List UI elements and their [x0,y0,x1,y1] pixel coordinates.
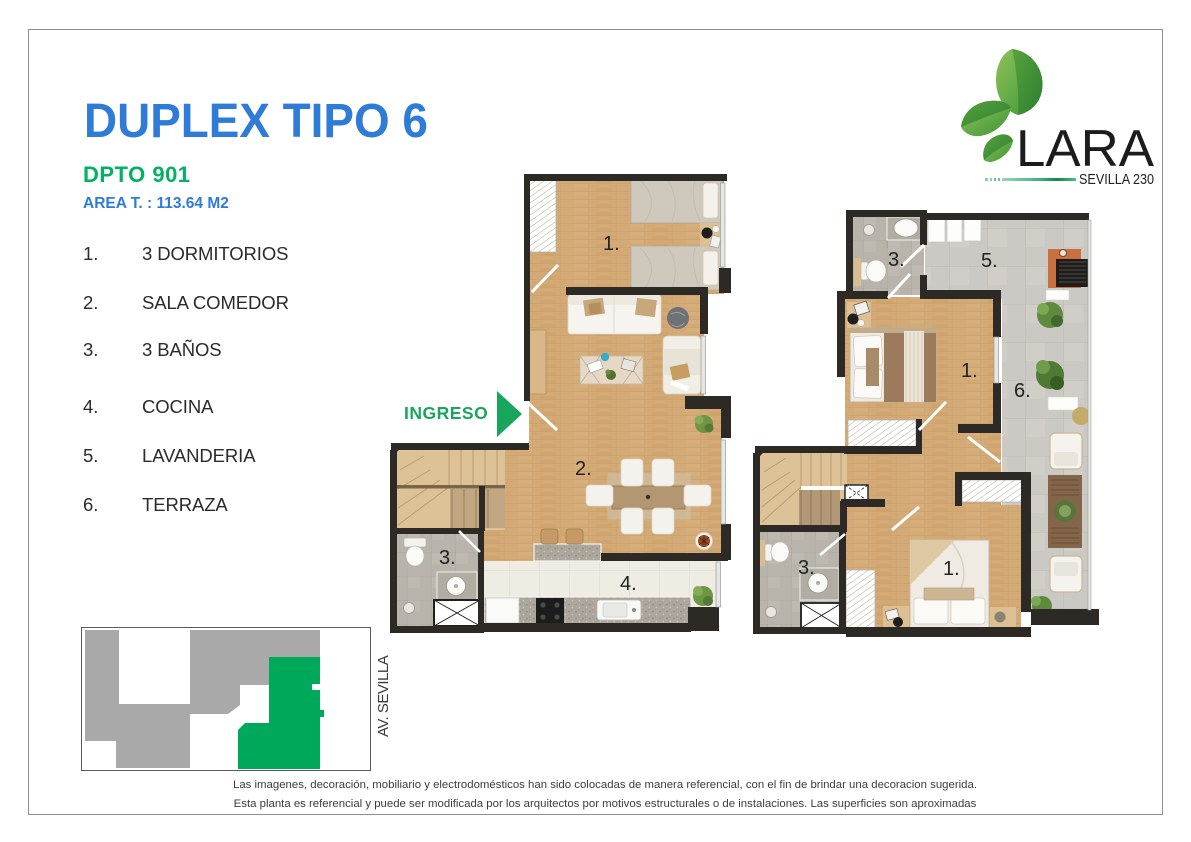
svg-text:4.: 4. [620,573,637,595]
svg-text:3.: 3. [439,547,456,569]
svg-text:2.: 2. [575,458,592,480]
svg-text:1.: 1. [943,558,960,580]
svg-text:6.: 6. [1014,380,1031,402]
svg-text:1.: 1. [603,233,620,255]
svg-text:3.: 3. [798,557,815,579]
svg-text:5.: 5. [981,250,998,272]
svg-text:SEVILLA 230: SEVILLA 230 [1079,172,1154,188]
svg-text:1.: 1. [961,360,978,382]
svg-text:LARA: LARA [1016,120,1154,178]
svg-text:3.: 3. [888,249,905,271]
